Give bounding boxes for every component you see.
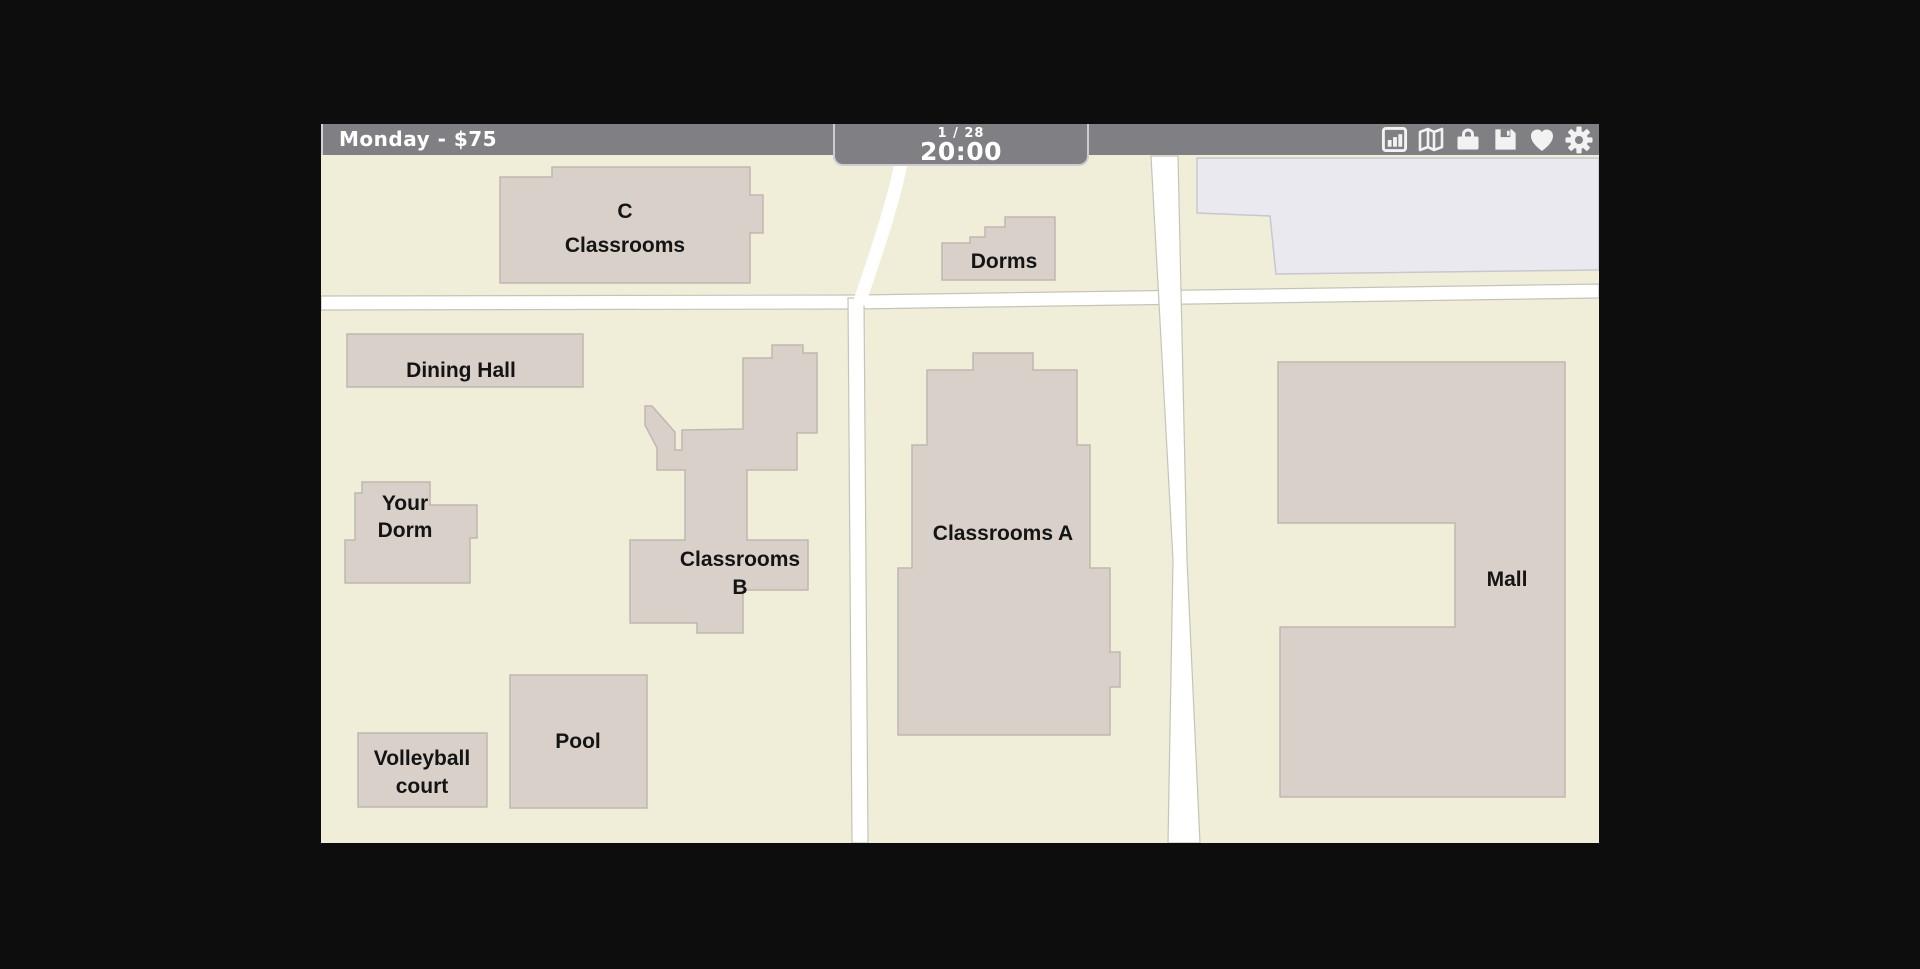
- campus-map: CClassroomsDormsDining HallYourDormClass…: [321, 126, 1599, 843]
- building-label-dorms: Dorms: [971, 250, 1038, 273]
- relationships-button[interactable]: [1528, 126, 1556, 154]
- building-label-classrooms-a: Classrooms A: [933, 522, 1073, 545]
- inventory-icon: [1454, 126, 1482, 154]
- settings-button[interactable]: [1565, 126, 1593, 154]
- relationships-icon: [1528, 126, 1556, 154]
- time-display: 1 / 28 20:00: [833, 124, 1089, 166]
- clock: 20:00: [835, 140, 1087, 163]
- building-label-pool: Pool: [555, 730, 601, 753]
- map-button[interactable]: [1417, 126, 1445, 154]
- inventory-button[interactable]: [1454, 126, 1482, 154]
- building-label-mall: Mall: [1487, 568, 1528, 591]
- building-label-dining-hall: Dining Hall: [406, 359, 516, 382]
- hud-icon-bar: [1380, 124, 1593, 155]
- save-button[interactable]: [1491, 126, 1519, 154]
- save-icon: [1492, 126, 1519, 153]
- stats-icon: [1381, 126, 1408, 153]
- stats-button[interactable]: [1380, 126, 1408, 154]
- top-bar: Monday - $75 1 / 28 20:00: [321, 124, 1599, 155]
- game-window: CClassroomsDormsDining HallYourDormClass…: [321, 124, 1599, 843]
- center-vertical-road: [848, 298, 868, 843]
- game-screen: CClassroomsDormsDining HallYourDormClass…: [0, 0, 1920, 969]
- day-money-label: Monday - $75: [339, 124, 497, 155]
- settings-icon: [1565, 126, 1593, 154]
- building-c-classrooms[interactable]: [500, 167, 763, 283]
- map-icon: [1417, 126, 1445, 154]
